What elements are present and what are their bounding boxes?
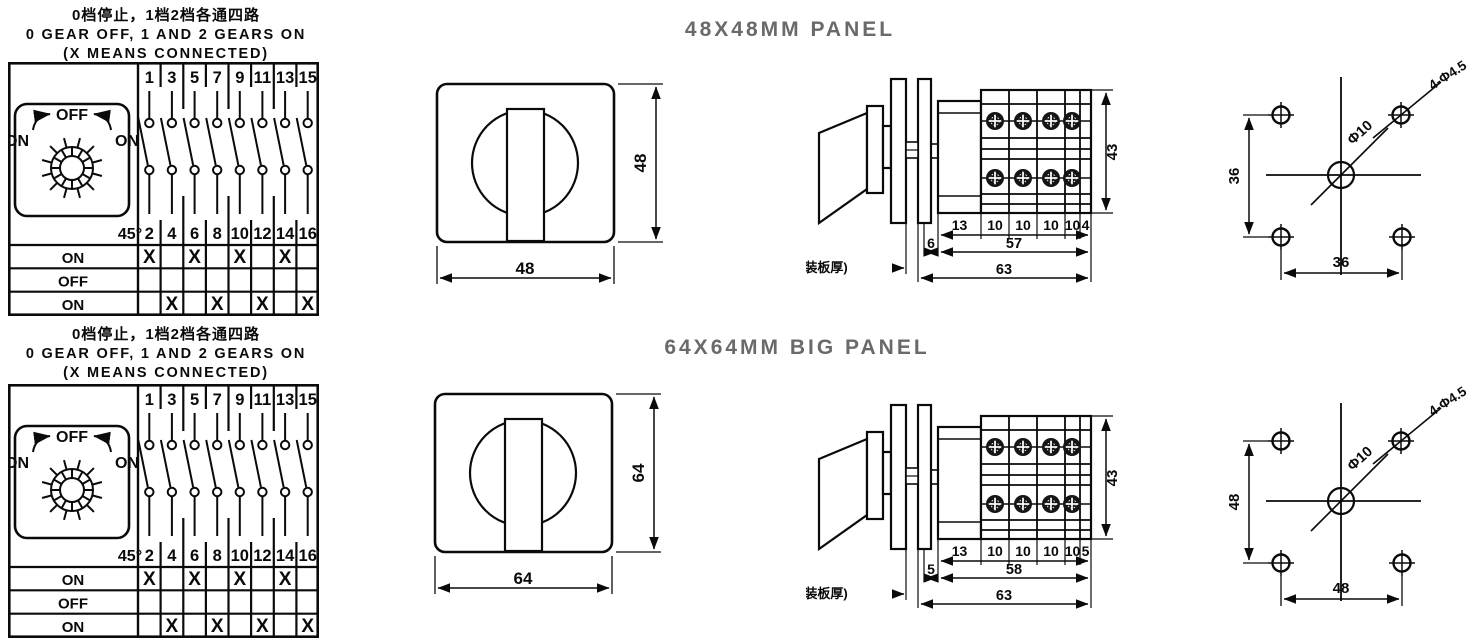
side-span-dim: 57 <box>1006 236 1022 252</box>
drawing-sheet: OFF ON ON 45° 1 3 5 7 9 11 13 15 2 4 6 8… <box>0 0 1480 640</box>
panel-title-2: 64X64MM BIG PANEL <box>547 336 1047 360</box>
corner-holes-dim: 4-Φ4.5 <box>1426 57 1470 93</box>
side-seg-dim: 13 <box>952 543 968 559</box>
mounting-holes-2: 48 48 Φ10 4-Φ4.5 <box>1213 378 1480 618</box>
mount-thickness-label: 1-5(安装板厚) <box>806 260 848 275</box>
front-view-2: 64 64 <box>430 388 670 600</box>
side-height-dim: 43 <box>1104 470 1121 487</box>
side-seg-dim: 10 <box>1015 543 1031 559</box>
front-height-dim: 48 <box>631 154 650 173</box>
holes-horizontal-dim: 36 <box>1333 254 1350 271</box>
heading-cn: 0档停止，1档2档各通四路 <box>0 6 332 26</box>
side-gap-dim: 5 <box>927 561 935 577</box>
side-view-1: 13 10 10 10 10 4 6 57 63 43 1-5(安装板厚) <box>806 56 1151 291</box>
side-seg-dim: 10 <box>1065 543 1081 559</box>
table-heading-2: 0档停止，1档2档各通四路 0 GEAR OFF, 1 AND 2 GEARS … <box>0 325 332 383</box>
front-height-dim: 64 <box>629 463 648 482</box>
side-seg-dim: 10 <box>1015 217 1031 233</box>
connection-table-2 <box>8 384 320 638</box>
holes-vertical-dim: 36 <box>1226 168 1243 185</box>
front-view-1: 48 48 <box>432 78 672 290</box>
heading-cn: 0档停止，1档2档各通四路 <box>0 325 332 345</box>
side-seg-dim: 13 <box>952 217 968 233</box>
front-width-dim: 64 <box>514 569 533 588</box>
heading-en: 0 GEAR OFF, 1 AND 2 GEARS ON <box>0 26 332 45</box>
heading-note: (X MEANS CONNECTED) <box>0 364 332 383</box>
side-total-dim: 63 <box>996 588 1012 604</box>
side-span-dim: 58 <box>1006 562 1022 578</box>
holes-horizontal-dim: 48 <box>1333 580 1350 597</box>
side-height-dim: 43 <box>1104 144 1121 161</box>
mounting-holes-1: 36 36 Φ10 4-Φ4.5 <box>1213 52 1480 292</box>
side-seg-dim: 4 <box>1082 217 1090 233</box>
side-seg-dim: 10 <box>987 543 1003 559</box>
side-seg-dim: 10 <box>1043 543 1059 559</box>
side-seg-dim: 10 <box>1065 217 1081 233</box>
mount-thickness-label: 1-5(安装板厚) <box>806 586 848 601</box>
side-seg-dim: 10 <box>1043 217 1059 233</box>
front-width-dim: 48 <box>516 259 535 278</box>
holes-vertical-dim: 48 <box>1226 494 1243 511</box>
side-seg-dim: 10 <box>987 217 1003 233</box>
side-gap-dim: 6 <box>927 235 935 251</box>
side-total-dim: 63 <box>996 262 1012 278</box>
table-heading-1: 0档停止，1档2档各通四路 0 GEAR OFF, 1 AND 2 GEARS … <box>0 6 332 64</box>
corner-holes-dim: 4-Φ4.5 <box>1426 383 1470 419</box>
panel-title-1: 48X48MM PANEL <box>540 18 1040 42</box>
side-seg-dim: 5 <box>1082 543 1090 559</box>
heading-en: 0 GEAR OFF, 1 AND 2 GEARS ON <box>0 345 332 364</box>
side-view-2: 13 10 10 10 10 5 5 58 63 43 1-5(安装板厚) <box>806 382 1151 617</box>
connection-table-1 <box>8 62 320 316</box>
